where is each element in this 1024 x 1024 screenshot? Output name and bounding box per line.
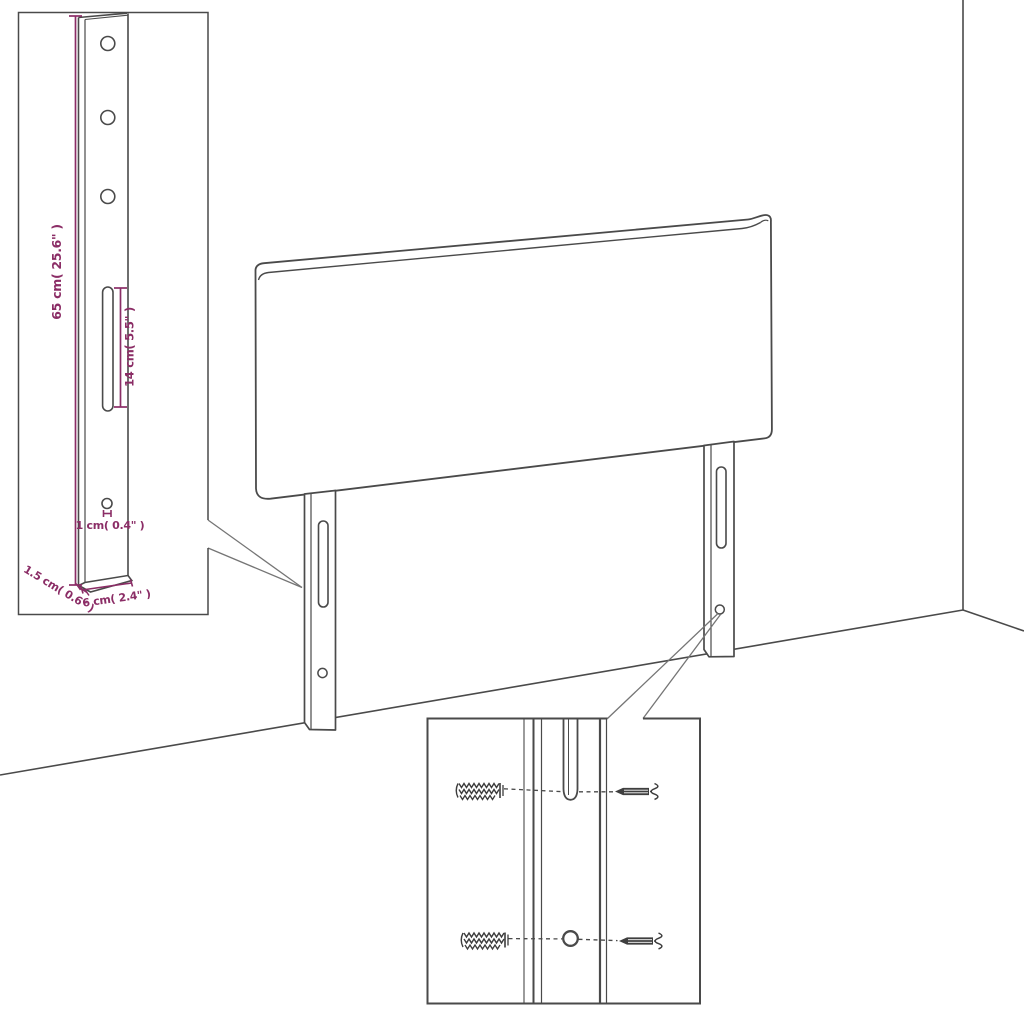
- wall-plug-top: [456, 783, 503, 800]
- left-leg-hole: [318, 668, 327, 677]
- dimension-height: 65 cm( 25.6" ): [49, 16, 82, 585]
- screw-bottom: [619, 933, 662, 949]
- callout-line: [643, 615, 721, 719]
- dim-label-slot: 14 cm( 5.5" ): [123, 307, 137, 387]
- floor-line-right: [963, 610, 1024, 631]
- right-leg: [704, 442, 734, 657]
- right-leg-slot: [717, 467, 727, 548]
- bracket-hole-2: [101, 111, 115, 125]
- right-leg-hole: [715, 605, 724, 614]
- product-diagram: 65 cm( 25.6" ) 14 cm( 5.5" ) 1 cm( 0.4" …: [0, 0, 1024, 1024]
- bracket-strip: [524, 719, 607, 1004]
- bracket-hole-3: [101, 190, 115, 204]
- left-leg: [305, 491, 336, 731]
- assembly-diagram-svg: 65 cm( 25.6" ) 14 cm( 5.5" ) 1 cm( 0.4" …: [0, 0, 1024, 1024]
- floor-line-left: [0, 610, 963, 775]
- dimension-hole: 1 cm( 0.4" ): [76, 510, 145, 532]
- wall-plug-bottom: [461, 933, 508, 950]
- headboard-panel: [256, 215, 772, 499]
- mounting-parts: [456, 783, 662, 949]
- dim-label-hole: 1 cm( 0.4" ): [76, 519, 145, 532]
- strip-slot: [564, 719, 578, 800]
- panel-outline: [256, 215, 772, 499]
- bracket-small-hole: [102, 499, 112, 509]
- bracket-drawing: [79, 13, 132, 592]
- bracket-hole-1: [101, 37, 115, 51]
- dimension-slot: 14 cm( 5.5" ): [114, 288, 137, 407]
- strip-hole: [563, 931, 578, 946]
- leader-hole-to-screw: [579, 939, 618, 940]
- dim-label-height: 65 cm( 25.6" ): [49, 224, 64, 319]
- mounting-detail-inset: [428, 719, 701, 1004]
- bracket-top-outer-edge: [79, 13, 128, 17]
- screw-top: [615, 784, 658, 800]
- callout-line: [608, 614, 719, 719]
- bracket-slot: [103, 287, 113, 411]
- bracket-detail-callout: [208, 520, 302, 588]
- left-leg-slot: [319, 521, 329, 607]
